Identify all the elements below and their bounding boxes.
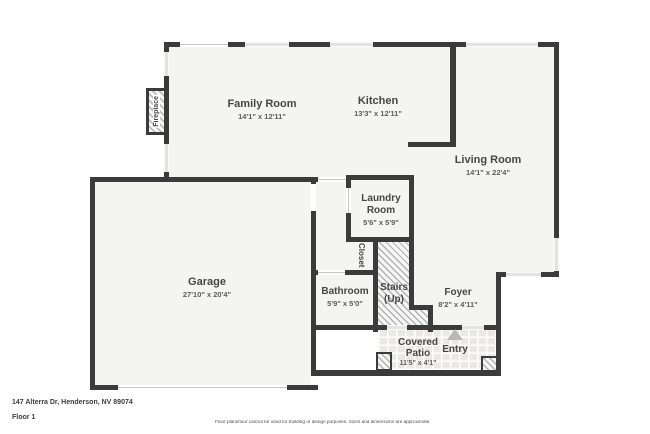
bathroom-door-opening: [318, 270, 345, 275]
window-left-2: [164, 144, 169, 172]
address-text: 147 Alterra Dr, Henderson, NV 89074: [12, 399, 133, 406]
laundry-room-label-2: Room: [367, 206, 395, 216]
garage-door: [118, 385, 287, 390]
window-top-3: [330, 42, 373, 47]
covered-patio-dims: 11'5" x 4'1": [400, 360, 437, 367]
patio-post-left: [376, 352, 392, 371]
entry-label: Entry: [442, 345, 468, 355]
window-stairs-bottom: [387, 325, 407, 330]
patio-floor: [378, 330, 498, 370]
stairs-label-2: (Up): [384, 295, 404, 305]
garage-label: Garage: [188, 277, 226, 288]
living-room-dims: 14'1" x 22'4": [466, 169, 510, 177]
family-kitchen-floor: [169, 47, 456, 177]
window-top-4: [466, 42, 538, 47]
living-room-label: Living Room: [455, 155, 522, 166]
garage-door-opening-house: [311, 184, 316, 211]
window-right-living: [554, 238, 559, 271]
foyer-dims: 8'2" x 4'11": [438, 301, 477, 309]
garage-dims: 27'10" x 20'4": [183, 291, 231, 299]
laundry-bottom-wall: [346, 237, 414, 242]
garage-top-wall: [90, 177, 318, 182]
kitchen-dims: 13'3" x 12'11": [354, 110, 402, 118]
window-left-1: [164, 52, 169, 76]
entry-direction-icon: [447, 329, 463, 340]
opening-kitchen-hall: [318, 177, 346, 182]
window-living-bottom: [506, 272, 541, 277]
covered-patio-label-1: Covered: [398, 338, 438, 348]
disclaimer-text: Floor plans/tour cannot be used for buil…: [215, 420, 431, 425]
family-room-dims: 14'1" x 12'11": [238, 113, 286, 121]
floor-label: Floor 1: [12, 414, 35, 421]
laundry-right-wall: [409, 175, 414, 310]
family-room-label: Family Room: [227, 99, 296, 110]
kitchen-divider-stub: [408, 142, 456, 147]
closet-right-wall: [373, 242, 378, 332]
fireplace: Fireplace: [146, 88, 167, 135]
window-top-1: [180, 42, 228, 47]
garage-left-wall: [90, 177, 95, 390]
window-top-2: [245, 42, 289, 47]
fireplace-label: Fireplace: [153, 95, 160, 128]
closet-label: Closet: [357, 243, 365, 267]
laundry-room-dims: 5'6" x 5'9": [363, 219, 399, 227]
floor-plan: Fireplace Family Room 14'1" x 12'11" Kit…: [0, 0, 650, 434]
covered-patio-label-2: Patio: [406, 349, 430, 359]
stairs-label-1: Stairs: [380, 283, 408, 293]
laundry-door-opening: [346, 188, 351, 213]
kitchen-living-divider: [450, 42, 456, 147]
kitchen-label: Kitchen: [358, 96, 398, 107]
foyer-label: Foyer: [444, 288, 471, 298]
patio-bottom-wall: [311, 370, 501, 376]
bathroom-dims: 5'9" x 5'0": [327, 300, 363, 308]
window-foyer-bottom: [462, 325, 484, 330]
laundry-top-wall: [346, 175, 414, 180]
bathroom-label: Bathroom: [321, 287, 368, 297]
laundry-room-label-1: Laundry: [361, 194, 400, 204]
patio-post-right: [481, 356, 498, 372]
